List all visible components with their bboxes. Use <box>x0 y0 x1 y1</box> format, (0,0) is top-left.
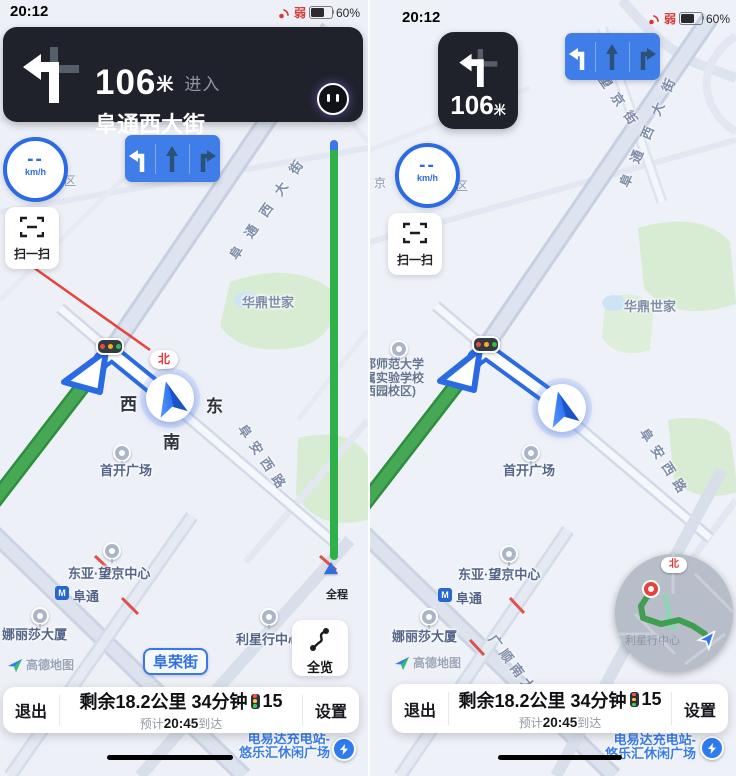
remaining-text: 剩余18.2公里 34分钟 <box>458 687 626 713</box>
traffic-light-count-icon <box>630 692 639 707</box>
minimap-compass: 北 <box>661 557 687 573</box>
dual-screenshot-stage: 20:12 弱 60% 106米进入 阜通西大街 <box>0 0 736 776</box>
battery-icon <box>309 6 333 19</box>
lights-count: 15 <box>263 691 283 712</box>
turn-left-icon <box>458 44 500 92</box>
overview-icon <box>308 626 332 652</box>
map-label-huading: 华鼎世家 <box>242 292 294 311</box>
status-time: 20:12 <box>402 9 440 26</box>
position-marker <box>538 384 586 432</box>
battery-icon <box>679 12 703 25</box>
distance-unit: 米 <box>156 75 174 94</box>
battery-percent: 60% <box>706 12 730 26</box>
traffic-light-count-icon <box>251 694 260 709</box>
turn-left-icon <box>21 43 83 107</box>
status-icons: 弱 60% <box>278 4 360 21</box>
lane-guidance <box>565 33 660 80</box>
watermark: 高德地图 <box>7 656 74 673</box>
traffic-light-icon <box>96 338 124 355</box>
map-label-furong-road: 阜荣街 <box>143 648 208 675</box>
charging-poi-label: 电易达充电站- 悠乐汇休闲广场 <box>239 732 330 760</box>
action-label: 进入 <box>184 75 220 94</box>
remaining-text: 剩余18.2公里 34分钟 <box>79 688 247 714</box>
scan-label: 扫一扫 <box>388 251 442 268</box>
settings-button[interactable]: 设置 <box>672 684 728 733</box>
lane-right-arrow-icon <box>637 43 657 71</box>
direction-east: 东 <box>206 392 223 417</box>
assistant-robot-icon[interactable] <box>317 83 349 115</box>
progress-label: 全程 <box>326 586 348 602</box>
lane-straight-arrow-icon <box>162 145 182 173</box>
distance-value: 106 <box>95 63 156 102</box>
scan-icon <box>20 216 44 238</box>
minimap-poi-label: 利星行中心 <box>625 632 680 648</box>
progress-car-icon <box>324 562 338 574</box>
map-label-futong-station: 阜通 <box>456 588 482 607</box>
map-label-nalisha: 娜丽莎大厦 <box>2 624 67 643</box>
charging-pin-icon <box>700 736 724 760</box>
scan-button[interactable]: 扫一扫 <box>388 213 442 275</box>
poi-pin-icon <box>420 608 438 626</box>
weak-signal-icon <box>648 13 661 25</box>
map-label-shoukai: 首开广场 <box>503 460 555 479</box>
exit-button[interactable]: 退出 <box>3 687 59 733</box>
compass-pill: 北 <box>150 350 178 369</box>
status-icons: 弱 60% <box>648 10 730 27</box>
eta-info: 预计20:45到达 <box>140 715 223 732</box>
watermark: 高德地图 <box>394 654 461 671</box>
metro-icon: M <box>55 586 69 600</box>
destination-pin-icon <box>642 580 660 598</box>
distance-value: 106 <box>450 90 493 120</box>
lane-guidance <box>125 135 220 182</box>
watermark-label: 高德地图 <box>413 654 461 671</box>
remaining-info[interactable]: 剩余18.2公里 34分钟 15 预计20:45到达 <box>449 684 671 733</box>
lights-count: 15 <box>642 689 662 710</box>
speed-value: -- <box>399 159 456 173</box>
settings-button[interactable]: 设置 <box>303 687 359 733</box>
scan-icon <box>403 222 427 244</box>
school-pin-icon <box>390 340 408 358</box>
watermark-logo-icon <box>7 657 23 673</box>
weak-label: 弱 <box>664 10 676 27</box>
home-indicator <box>498 755 622 760</box>
exit-button[interactable]: 退出 <box>392 684 448 733</box>
next-road-name: 阜通西大街 <box>95 107 205 139</box>
panel-right-navigation: 20:12 弱 60% 106米 <box>368 0 736 776</box>
progress-bar <box>330 140 338 560</box>
map-label-dongya: 东亚·望京中心 <box>458 564 540 583</box>
direction-west: 西 <box>120 390 137 415</box>
map-label-school: 都师范大学 属实验学校 西园校区) <box>368 358 424 399</box>
lane-left-arrow-icon <box>568 43 588 71</box>
map-label-shoukai: 首开广场 <box>100 460 152 479</box>
weak-label: 弱 <box>294 4 306 21</box>
watermark-logo-icon <box>394 655 410 671</box>
status-time: 20:12 <box>10 3 48 20</box>
map-label-huading: 华鼎世家 <box>624 296 676 315</box>
nav-banner: 106米进入 阜通西大街 <box>3 27 363 122</box>
traffic-light-icon <box>472 336 500 353</box>
position-marker <box>146 374 194 422</box>
metro-icon: M <box>438 588 452 602</box>
bottom-bar: 退出 剩余18.2公里 34分钟 15 预计20:45到达 设置 <box>392 684 728 733</box>
scan-label: 扫一扫 <box>5 245 59 262</box>
distance-unit: 米 <box>494 103 506 117</box>
poi-pin-icon <box>103 542 121 560</box>
bottom-bar: 退出 剩余18.2公里 34分钟 15 预计20:45到达 设置 <box>3 687 359 733</box>
remaining-info[interactable]: 剩余18.2公里 34分钟 15 预计20:45到达 <box>60 687 302 733</box>
battery-percent: 60% <box>336 6 360 20</box>
home-indicator <box>107 755 233 760</box>
poi-pin-icon <box>500 545 518 563</box>
weak-signal-icon <box>278 7 291 19</box>
speed-unit: km/h <box>7 167 64 177</box>
poi-pin-icon <box>260 608 278 626</box>
minimap[interactable]: 利星行中心 北 <box>615 554 733 672</box>
speed-indicator: -- km/h <box>3 137 68 202</box>
nav-banner: 106米 <box>438 32 518 129</box>
speed-value: -- <box>7 153 64 167</box>
map-label-fragment: 京 <box>374 174 386 191</box>
panel-left-navigation: 20:12 弱 60% 106米进入 阜通西大街 <box>0 0 368 776</box>
charging-pin-icon <box>332 737 356 761</box>
lane-straight-arrow-icon <box>602 43 622 71</box>
lane-right-arrow-icon <box>197 145 217 173</box>
direction-south: 南 <box>163 428 180 453</box>
scan-button[interactable]: 扫一扫 <box>5 207 59 269</box>
eta-info: 预计20:45到达 <box>519 714 602 731</box>
overview-label: 全览 <box>292 657 348 676</box>
water-area <box>602 295 626 311</box>
overview-button[interactable]: 全览 <box>292 620 348 676</box>
speed-unit: km/h <box>399 173 456 183</box>
lane-left-arrow-icon <box>128 145 148 173</box>
watermark-label: 高德地图 <box>26 656 74 673</box>
map-label-nalisha: 娜丽莎大厦 <box>392 626 457 645</box>
poi-pin-icon <box>31 607 49 625</box>
speed-indicator: -- km/h <box>395 143 460 208</box>
map-label-futong-station: 阜通 <box>73 586 99 605</box>
map-label-dongya: 东亚·望京中心 <box>68 563 150 582</box>
